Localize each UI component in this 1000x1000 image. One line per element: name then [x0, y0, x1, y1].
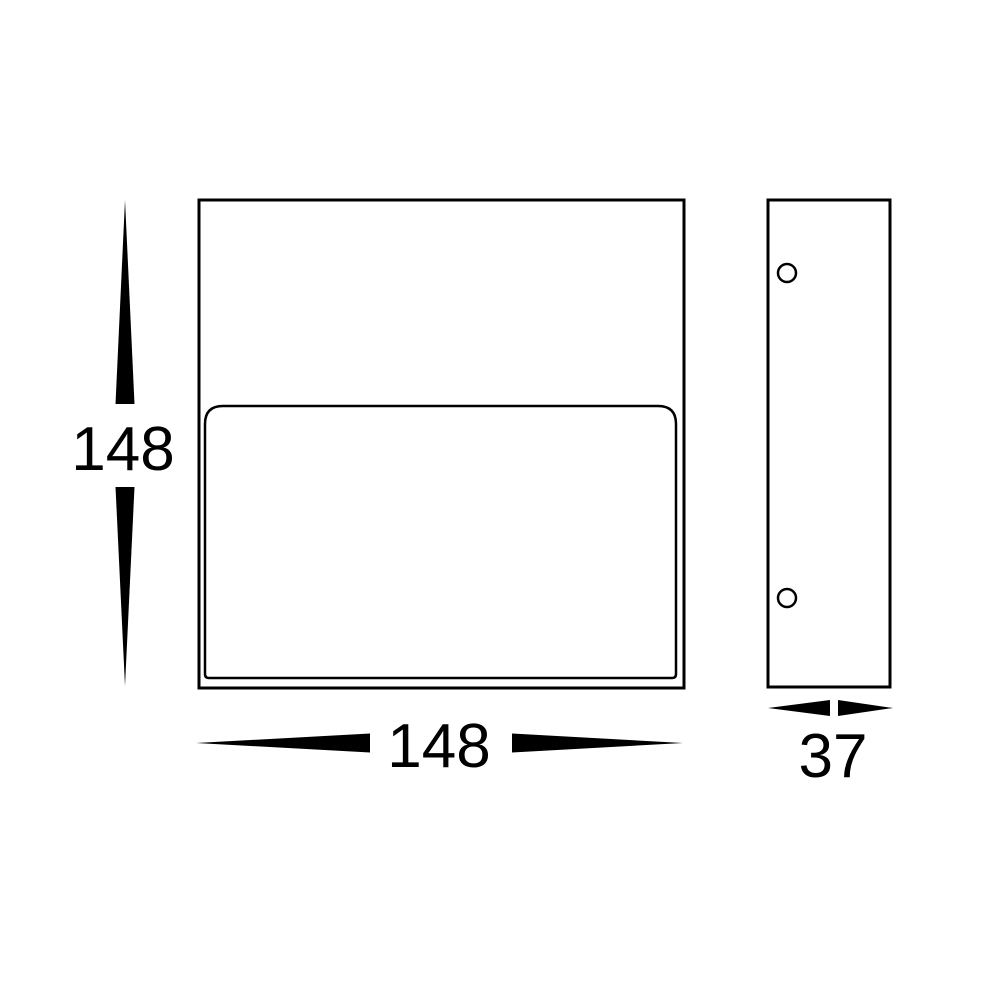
front-view — [199, 200, 684, 688]
width-dimension-arrow-left-icon — [196, 734, 370, 753]
screw-hole-top-icon — [778, 264, 796, 282]
height-dimension: 148 — [71, 200, 174, 686]
front-view-face-panel — [205, 406, 676, 678]
depth-dimension-arrow-right-icon — [838, 700, 893, 716]
width-dimension-label: 148 — [387, 712, 490, 781]
side-view — [768, 200, 890, 687]
depth-dimension-arrow-left-icon — [768, 700, 830, 716]
depth-dimension-label: 37 — [799, 722, 868, 791]
depth-dimension: 37 — [768, 700, 893, 791]
screw-hole-bottom-icon — [778, 589, 796, 607]
height-dimension-arrow-up-icon — [116, 200, 135, 404]
height-dimension-arrow-down-icon — [116, 487, 135, 686]
technical-drawing-page: 148 148 37 — [0, 0, 1000, 1000]
front-view-outline — [199, 200, 684, 688]
width-dimension: 148 — [196, 712, 683, 781]
side-view-outline — [768, 200, 890, 687]
technical-drawing: 148 148 37 — [0, 0, 1000, 1000]
height-dimension-label: 148 — [71, 415, 174, 484]
width-dimension-arrow-right-icon — [512, 734, 683, 753]
